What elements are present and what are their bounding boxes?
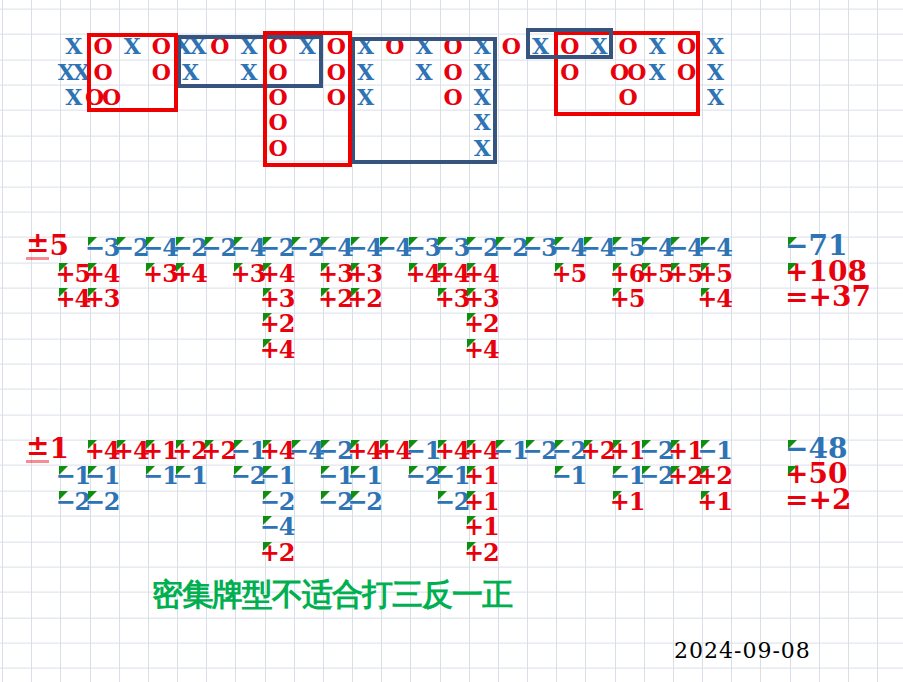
flag-triangle-icon <box>467 466 476 475</box>
flag-triangle-icon <box>438 466 447 475</box>
flag-triangle-icon <box>409 263 418 272</box>
xo-cell[interactable]: X <box>700 85 729 110</box>
flag-triangle-icon <box>438 491 447 500</box>
flag-triangle-icon <box>117 237 126 246</box>
flag-triangle-icon <box>671 263 680 272</box>
flag-triangle-icon <box>788 440 797 449</box>
flag-triangle-icon <box>292 237 301 246</box>
flag-triangle-icon <box>613 466 622 475</box>
flag-triangle-icon <box>438 440 447 449</box>
flag-triangle-icon <box>555 263 564 272</box>
note-text[interactable]: 密集牌型不适合打三反一正 <box>152 577 512 611</box>
flag-triangle-icon <box>701 491 710 500</box>
flag-triangle-icon <box>438 288 447 297</box>
xo-cell[interactable]: X <box>350 34 379 59</box>
plus-minus-1-sum-cell[interactable]: =+2 <box>785 490 875 515</box>
xo-cell[interactable]: O <box>146 59 175 84</box>
flag-triangle-icon <box>176 440 185 449</box>
xo-cell[interactable]: O <box>263 110 292 135</box>
xo-cell[interactable]: X <box>233 59 262 84</box>
flag-triangle-icon <box>351 491 360 500</box>
flag-triangle-icon <box>321 466 330 475</box>
xo-cell[interactable]: O <box>263 34 292 59</box>
flag-triangle-icon <box>176 263 185 272</box>
flag-triangle-icon <box>642 466 651 475</box>
flag-triangle-icon <box>438 237 447 246</box>
xo-cell[interactable]: X <box>467 85 496 110</box>
plus-minus-5-sum-cell[interactable]: =+37 <box>785 288 875 313</box>
date-cell[interactable]: 2024-09-08 <box>674 638 811 663</box>
flag-triangle-icon <box>380 237 389 246</box>
flag-triangle-icon <box>88 491 97 500</box>
flag-triangle-icon <box>263 237 272 246</box>
flag-triangle-icon <box>380 440 389 449</box>
flag-triangle-icon <box>146 263 155 272</box>
xo-cell[interactable]: X <box>292 34 321 59</box>
flag-triangle-icon <box>613 491 622 500</box>
flag-triangle-icon <box>642 440 651 449</box>
xo-cell[interactable]: O <box>671 34 700 59</box>
flag-triangle-icon <box>234 263 243 272</box>
flag-triangle-icon <box>321 491 330 500</box>
flag-triangle-icon <box>701 466 710 475</box>
xo-cell[interactable]: X <box>408 59 437 84</box>
xo-cell[interactable]: OO <box>88 85 117 110</box>
flag-triangle-icon <box>59 263 68 272</box>
flag-triangle-icon <box>409 440 418 449</box>
xo-cell[interactable]: O <box>554 59 583 84</box>
flag-triangle-icon <box>234 440 243 449</box>
flag-triangle-icon <box>351 466 360 475</box>
xo-cell[interactable]: O <box>438 34 467 59</box>
flag-triangle-icon <box>351 288 360 297</box>
xo-cell[interactable]: O <box>263 59 292 84</box>
xo-cell[interactable]: O <box>263 135 292 160</box>
plus-minus-sign: ± <box>26 432 49 463</box>
flag-triangle-icon <box>146 440 155 449</box>
xo-cell[interactable]: X <box>58 34 87 59</box>
xo-cell[interactable]: O <box>263 85 292 110</box>
xo-cell[interactable]: O <box>379 34 408 59</box>
flag-triangle-icon <box>467 516 476 525</box>
flag-triangle-icon <box>59 491 68 500</box>
xo-cell[interactable]: X <box>700 59 729 84</box>
xo-cell[interactable]: X <box>642 34 671 59</box>
xo-cell[interactable]: O <box>496 34 525 59</box>
flag-triangle-icon <box>321 288 330 297</box>
xo-cell[interactable]: O <box>146 34 175 59</box>
flag-triangle-icon <box>263 542 272 551</box>
xo-cell[interactable]: O <box>88 34 117 59</box>
flag-triangle-icon <box>409 466 418 475</box>
flag-triangle-icon <box>88 440 97 449</box>
xo-cell[interactable]: O <box>321 85 350 110</box>
flag-triangle-icon <box>642 237 651 246</box>
flag-triangle-icon <box>88 288 97 297</box>
flag-triangle-icon <box>467 542 476 551</box>
flag-triangle-icon <box>263 466 272 475</box>
flag-triangle-icon <box>351 440 360 449</box>
xo-cell[interactable]: X <box>525 34 554 59</box>
flag-triangle-icon <box>701 440 710 449</box>
flag-triangle-icon <box>176 466 185 475</box>
flag-triangle-icon <box>263 339 272 348</box>
xo-cell[interactable]: X <box>467 135 496 160</box>
flag-triangle-icon <box>263 440 272 449</box>
flag-triangle-icon <box>788 263 797 272</box>
flag-triangle-icon <box>496 440 505 449</box>
flag-triangle-icon <box>555 466 564 475</box>
flag-triangle-icon <box>467 313 476 322</box>
xo-cell[interactable]: X <box>175 59 204 84</box>
xo-cell[interactable]: X <box>117 34 146 59</box>
flag-triangle-icon <box>671 440 680 449</box>
xo-cell[interactable]: O <box>321 59 350 84</box>
xo-cell[interactable]: X <box>467 59 496 84</box>
flag-triangle-icon <box>263 288 272 297</box>
flag-triangle-icon <box>117 440 126 449</box>
xo-cell[interactable]: X <box>467 110 496 135</box>
flag-triangle-icon <box>788 466 797 475</box>
flag-triangle-icon <box>526 237 535 246</box>
xo-cell[interactable]: XX <box>175 34 204 59</box>
xo-cell[interactable]: XX <box>58 59 87 84</box>
xo-cell[interactable]: X <box>583 34 612 59</box>
xo-cell[interactable]: X <box>58 85 87 110</box>
xo-cell[interactable]: X <box>350 85 379 110</box>
flag-triangle-icon <box>176 237 185 246</box>
flag-triangle-icon <box>467 237 476 246</box>
flag-triangle-icon <box>263 516 272 525</box>
flag-triangle-icon <box>59 466 68 475</box>
flag-triangle-icon <box>613 288 622 297</box>
xo-cell[interactable]: X <box>467 34 496 59</box>
xo-cell[interactable]: X <box>642 59 671 84</box>
flag-triangle-icon <box>88 263 97 272</box>
flag-triangle-icon <box>321 440 330 449</box>
flag-triangle-icon <box>88 466 97 475</box>
xo-cell[interactable]: OO <box>613 59 642 84</box>
flag-triangle-icon <box>555 440 564 449</box>
flag-triangle-icon <box>467 288 476 297</box>
flag-triangle-icon <box>438 263 447 272</box>
flag-triangle-icon <box>59 288 68 297</box>
xo-cell[interactable]: X <box>350 59 379 84</box>
spreadsheet-canvas: XOXOXXOXOXOXOXOXOXOXOXOXXXOOXXOOXXOXOOOX… <box>0 0 903 682</box>
xo-cell[interactable]: O <box>321 34 350 59</box>
flag-triangle-icon <box>467 263 476 272</box>
flag-triangle-icon <box>321 263 330 272</box>
xo-cell[interactable]: X <box>233 34 262 59</box>
xo-cell[interactable]: X <box>700 34 729 59</box>
flag-triangle-icon <box>584 237 593 246</box>
flag-triangle-icon <box>146 466 155 475</box>
flag-triangle-icon <box>467 440 476 449</box>
flag-triangle-icon <box>263 491 272 500</box>
flag-triangle-icon <box>263 263 272 272</box>
flag-triangle-icon <box>671 466 680 475</box>
xo-cell[interactable]: O <box>438 59 467 84</box>
flag-triangle-icon <box>292 440 301 449</box>
flag-triangle-icon <box>526 440 535 449</box>
plus-minus-sign: ± <box>26 229 49 260</box>
flag-triangle-icon <box>467 491 476 500</box>
flag-triangle-icon <box>671 237 680 246</box>
flag-triangle-icon <box>701 237 710 246</box>
flag-triangle-icon <box>234 466 243 475</box>
xo-cell[interactable]: X <box>408 34 437 59</box>
flag-triangle-icon <box>642 263 651 272</box>
flag-triangle-icon <box>409 237 418 246</box>
flag-triangle-icon <box>701 288 710 297</box>
flag-triangle-icon <box>146 237 155 246</box>
xo-cell[interactable]: O <box>613 85 642 110</box>
flag-triangle-icon <box>467 339 476 348</box>
flag-triangle-icon <box>351 237 360 246</box>
flag-triangle-icon <box>613 237 622 246</box>
flag-triangle-icon <box>351 263 360 272</box>
xo-cell[interactable]: O <box>554 34 583 59</box>
flag-triangle-icon <box>496 237 505 246</box>
flag-triangle-icon <box>234 237 243 246</box>
flag-triangle-icon <box>263 313 272 322</box>
xo-cell[interactable]: O <box>438 85 467 110</box>
flag-triangle-icon <box>613 263 622 272</box>
flag-triangle-icon <box>788 237 797 246</box>
xo-cell[interactable]: O <box>613 34 642 59</box>
flag-triangle-icon <box>321 237 330 246</box>
flag-triangle-icon <box>205 440 214 449</box>
flag-triangle-icon <box>205 237 214 246</box>
flag-triangle-icon <box>88 237 97 246</box>
flag-triangle-icon <box>555 237 564 246</box>
xo-cell[interactable]: O <box>204 34 233 59</box>
xo-cell[interactable]: O <box>88 59 117 84</box>
flag-triangle-icon <box>701 263 710 272</box>
xo-cell[interactable]: O <box>671 59 700 84</box>
flag-triangle-icon <box>613 440 622 449</box>
flag-triangle-icon <box>584 440 593 449</box>
